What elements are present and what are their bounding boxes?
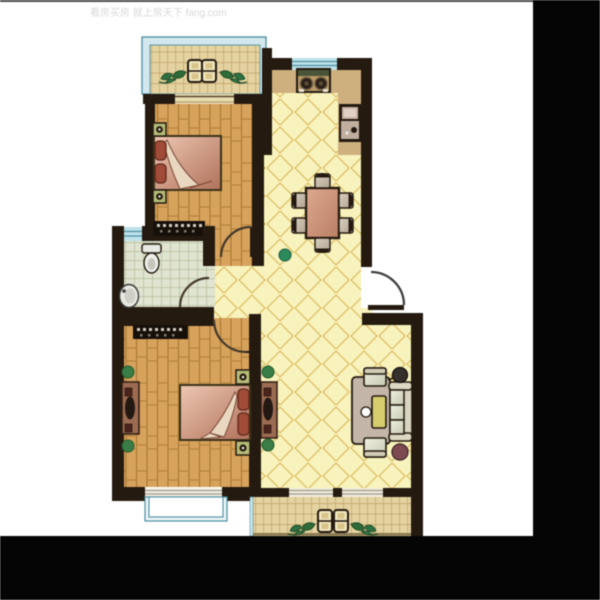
svg-text:看房买房 就上房天下 fang.com: 看房买房 就上房天下 fang.com [90,6,227,19]
